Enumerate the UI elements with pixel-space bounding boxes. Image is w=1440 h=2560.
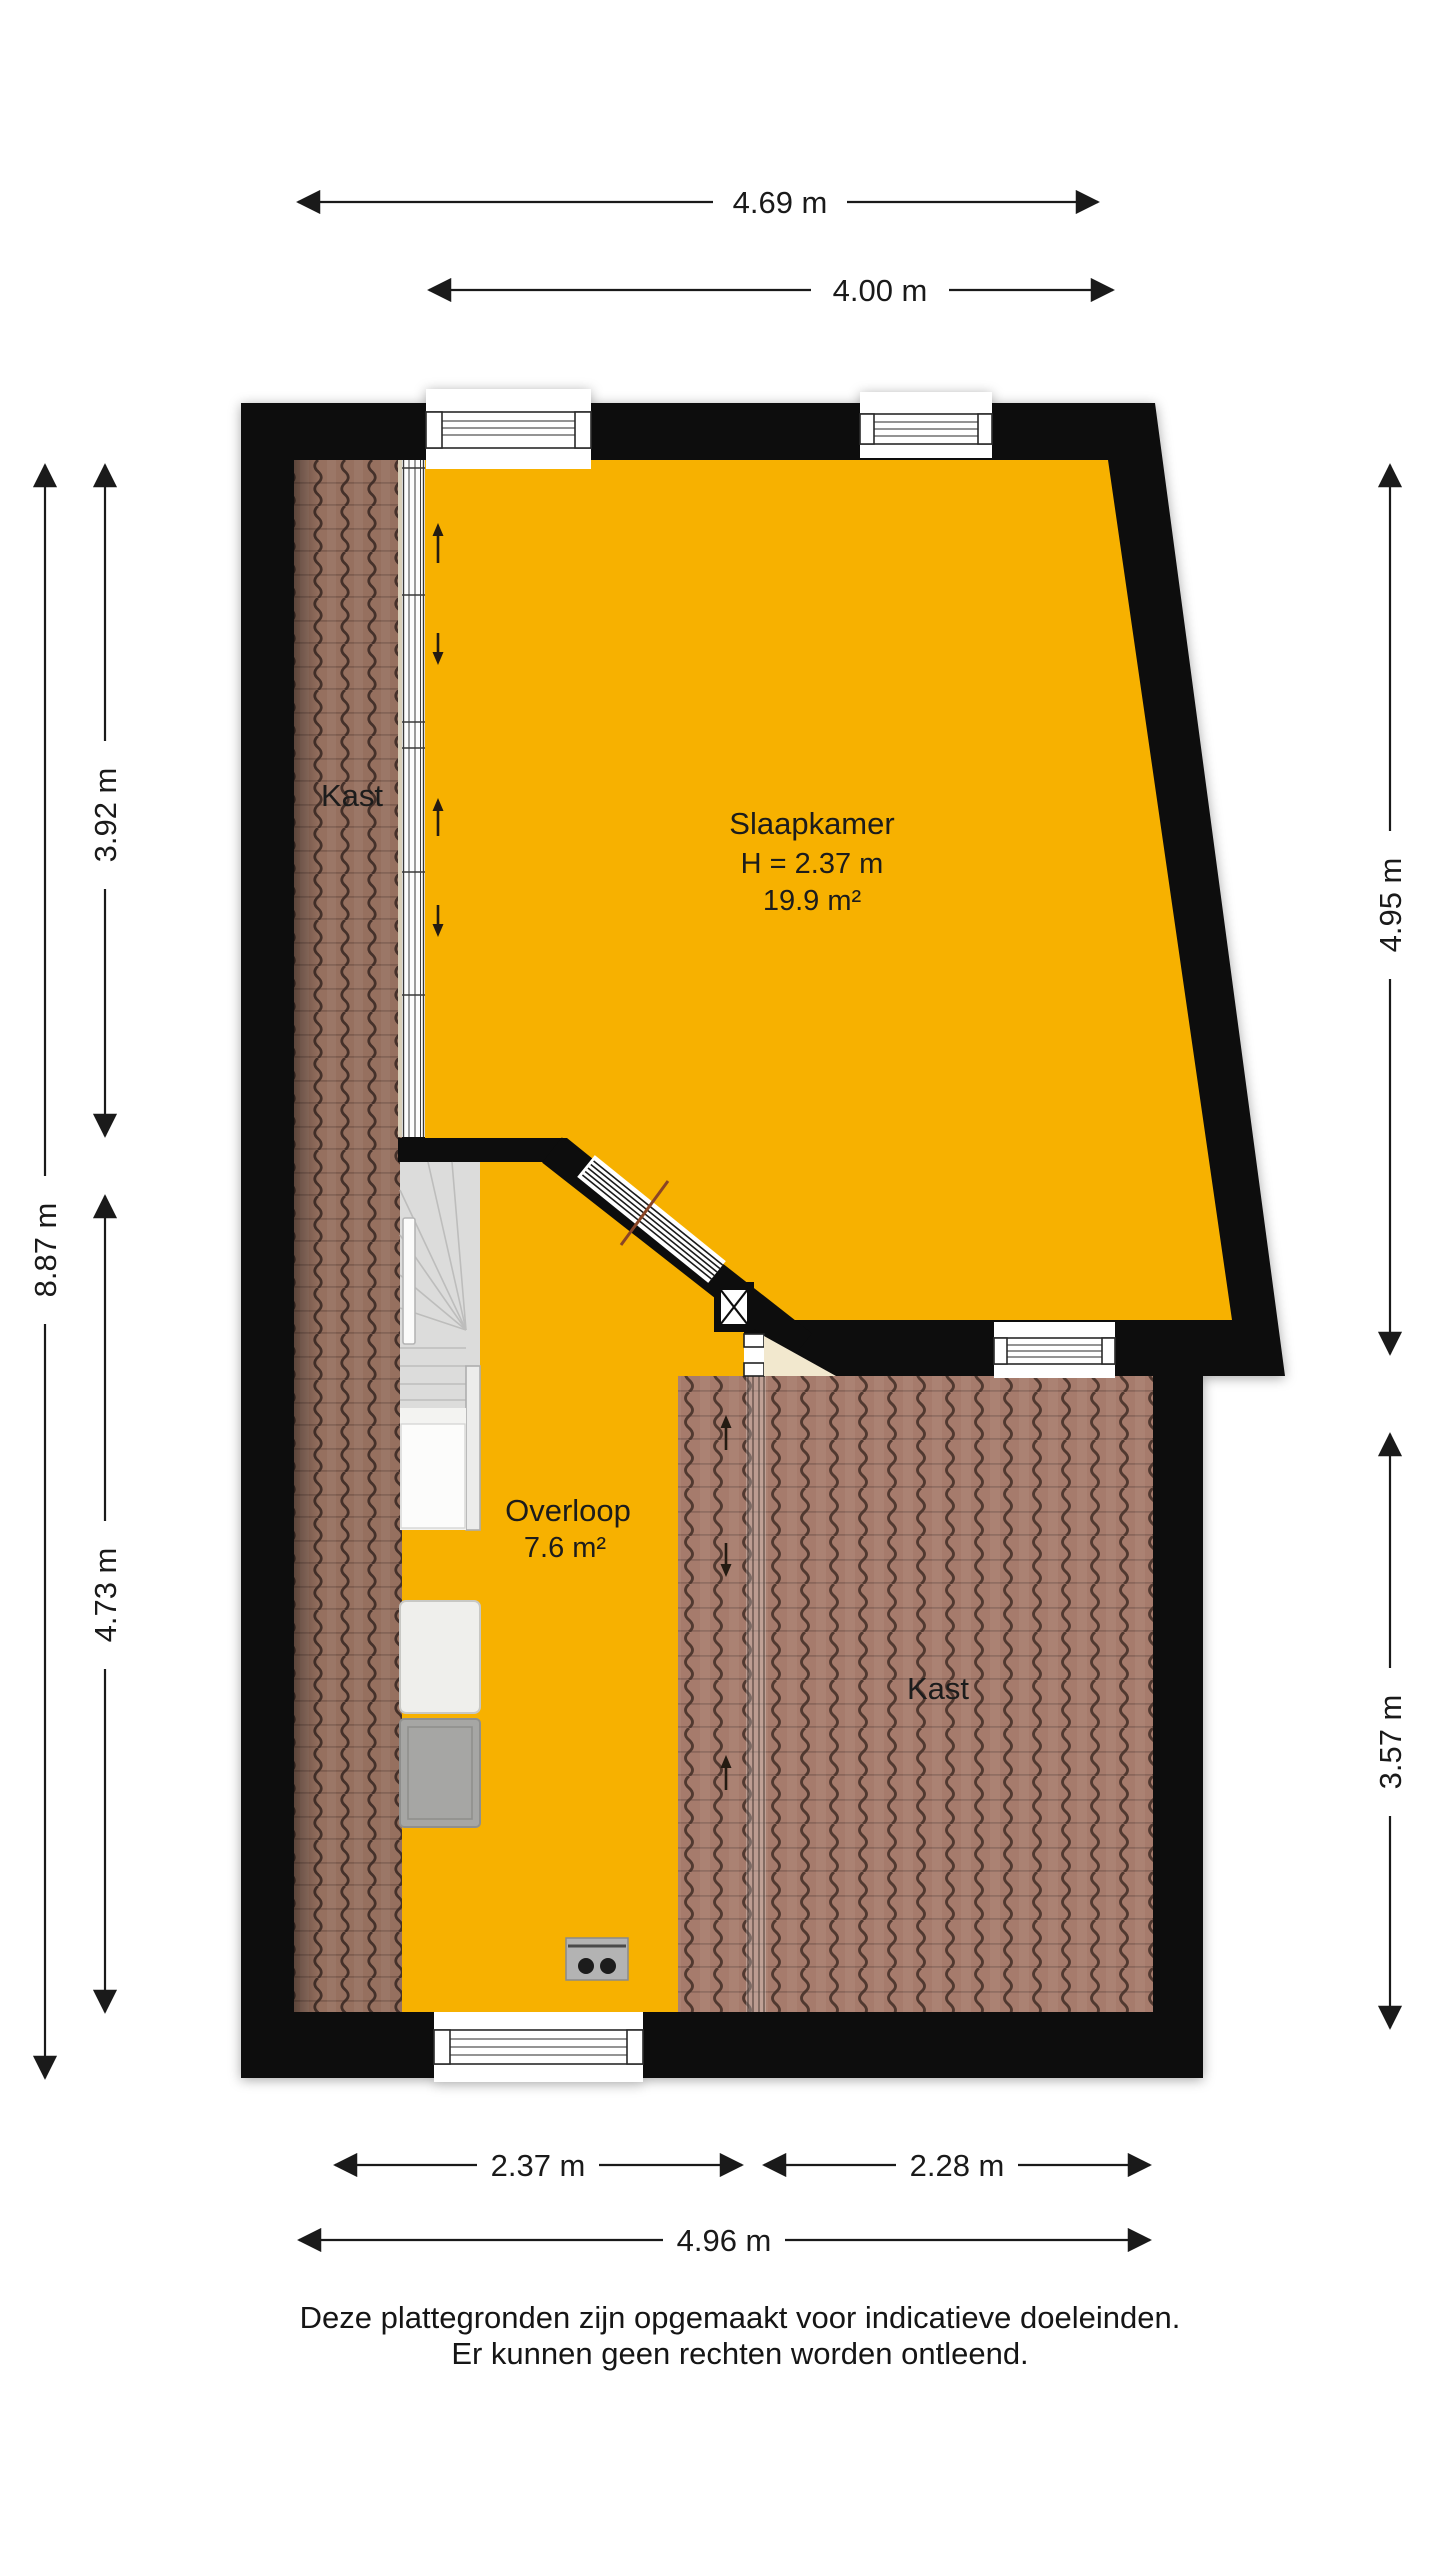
disclaimer-line-2: Er kunnen geen rechten worden ontleend. bbox=[451, 2336, 1028, 2371]
window-mid-right bbox=[994, 1322, 1115, 1378]
window-top-right bbox=[860, 392, 992, 458]
kast-left-edge bbox=[398, 460, 402, 1137]
heater-unit bbox=[566, 1938, 628, 1980]
slaapkamer-height: H = 2.37 m bbox=[741, 848, 884, 880]
kast-upper-label: Kast bbox=[321, 778, 383, 813]
kast-lower-label: Kast bbox=[907, 1671, 969, 1706]
dim-right-upper: 4.95 m bbox=[1373, 858, 1408, 953]
kast-left-shading bbox=[294, 460, 320, 2012]
appliance-gray bbox=[400, 1719, 480, 1827]
dim-bottom-left: 2.37 m bbox=[491, 2148, 586, 2183]
building: Kast Slaapkamer H = 2.37 m 19.9 m² Overl… bbox=[241, 389, 1285, 2082]
dim-bottom-outer: 4.96 m bbox=[677, 2223, 772, 2258]
window-bottom bbox=[434, 2012, 643, 2082]
dim-bottom-right: 2.28 m bbox=[910, 2148, 1005, 2183]
kast-door-opening bbox=[744, 1334, 764, 1376]
slaapkamer-area: 19.9 m² bbox=[763, 885, 862, 917]
appliance-white bbox=[400, 1601, 480, 1713]
overloop-top-wall bbox=[398, 1138, 567, 1162]
dim-left-upper: 3.92 m bbox=[88, 768, 123, 863]
disclaimer-line-1: Deze plattegronden zijn opgemaakt voor i… bbox=[300, 2300, 1181, 2335]
overloop-area: 7.6 m² bbox=[524, 1532, 607, 1564]
dim-left-lower: 4.73 m bbox=[88, 1548, 123, 1643]
dim-top-inner: 4.00 m bbox=[833, 273, 928, 308]
stairs bbox=[400, 1162, 480, 1530]
dim-left-outer: 8.87 m bbox=[28, 1203, 63, 1298]
dim-top-outer: 4.69 m bbox=[733, 185, 828, 220]
dim-right-lower: 3.57 m bbox=[1373, 1695, 1408, 1790]
stairs-railing bbox=[403, 1218, 415, 1344]
slaapkamer-label: Slaapkamer bbox=[729, 806, 894, 841]
flue-column bbox=[714, 1282, 754, 1332]
kneewall-strip bbox=[402, 460, 425, 1137]
window-top-left bbox=[426, 389, 591, 469]
kast-right-kneewall bbox=[746, 1376, 766, 2012]
floorplan-canvas: Kast Slaapkamer H = 2.37 m 19.9 m² Overl… bbox=[0, 0, 1440, 2560]
overloop-label: Overloop bbox=[505, 1493, 631, 1528]
